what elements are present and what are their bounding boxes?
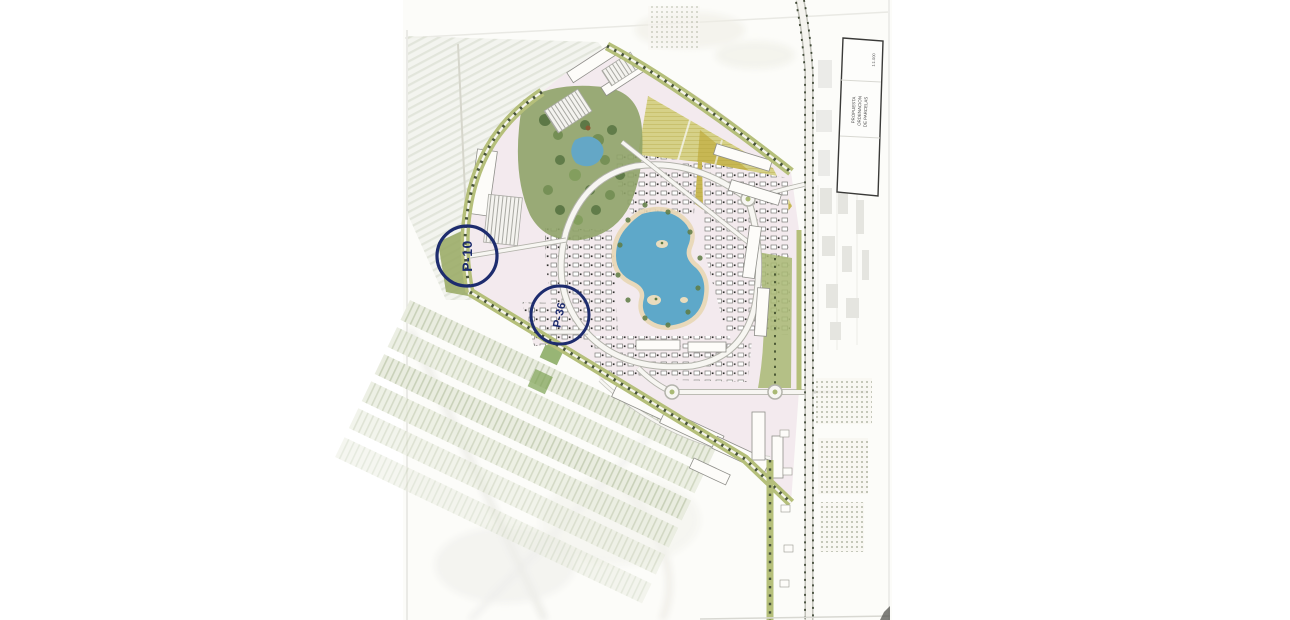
site-plan-drawing: 1:1.000 PROPUESTA ORDENACION DE PARCELAS… — [0, 0, 1290, 620]
title-block: 1:1.000 PROPUESTA ORDENACION DE PARCELAS — [816, 38, 883, 196]
p10-label: P-10 — [459, 240, 475, 272]
title-block-line2: ORDENACION — [856, 96, 862, 126]
title-block-line3: DE PARCELAS — [862, 97, 868, 128]
title-block-scale: 1:1.000 — [871, 52, 876, 66]
scanned-site-plan-page: 1:1.000 PROPUESTA ORDENACION DE PARCELAS… — [0, 0, 1290, 620]
title-block-line1: PROPUESTA — [851, 96, 857, 123]
